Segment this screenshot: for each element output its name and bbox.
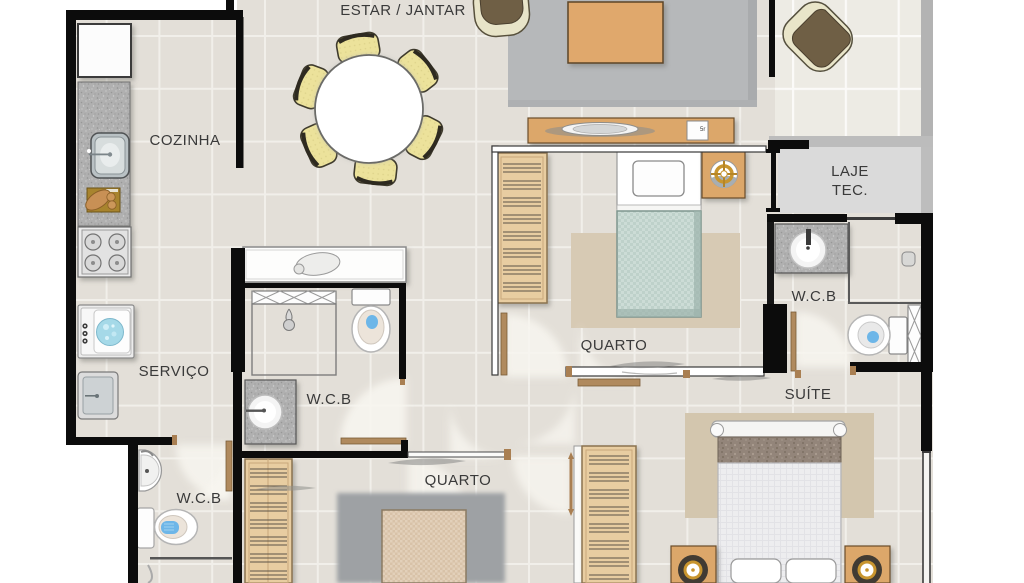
svg-text:QUARTO: QUARTO: [425, 472, 492, 489]
svg-text:5r: 5r: [700, 127, 705, 133]
svg-text:LAJE: LAJE: [831, 163, 869, 180]
svg-text:W.C.B: W.C.B: [306, 391, 351, 408]
svg-text:W.C.B: W.C.B: [176, 490, 221, 507]
svg-text:ESTAR / JANTAR: ESTAR / JANTAR: [340, 2, 466, 19]
svg-text:QUARTO: QUARTO: [581, 337, 648, 354]
svg-text:W.C.B: W.C.B: [791, 288, 836, 305]
svg-text:COZINHA: COZINHA: [150, 132, 221, 149]
svg-text:SUÍTE: SUÍTE: [785, 386, 832, 403]
svg-text:SERVIÇO: SERVIÇO: [139, 363, 210, 380]
svg-text:TEC.: TEC.: [832, 182, 868, 199]
